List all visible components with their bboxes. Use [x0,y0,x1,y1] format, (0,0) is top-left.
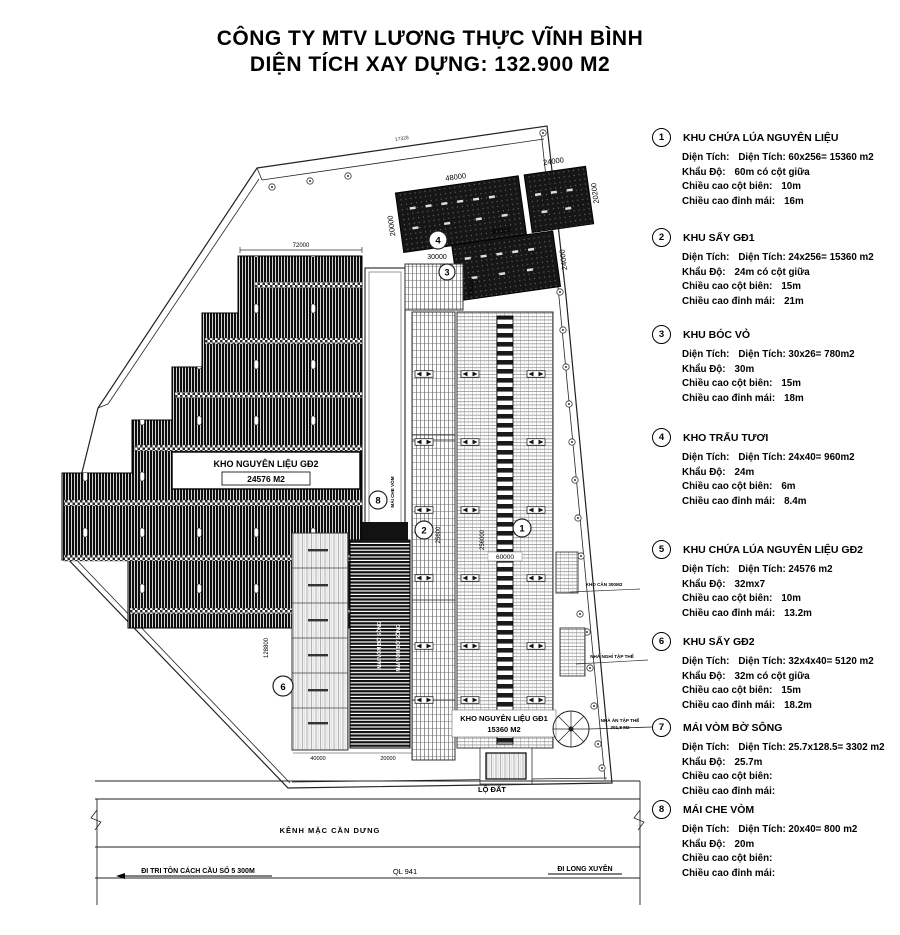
ridge-label: Chiều cao đỉnh mái: [682,296,775,307]
area-value: Diện Tích: 24576 m2 [738,564,832,575]
legend-item-4: 4 KHO TRẤU TƯƠI Diện Tích:Diện Tích: 24x… [652,428,898,509]
span-label: Khẩu Độ: [682,467,726,478]
legend-name-8: MÁI CHE VÒM [683,804,754,816]
ridge-value: 18.2m [784,700,812,711]
ridge-label: Chiều cao đỉnh mái: [682,196,775,207]
site-plan-drawing: 17328 48000 24000 20000 20200 [0,0,900,935]
edge-label: Chiều cao cột biên: [682,593,772,604]
area-label: Diện Tích: [682,824,729,835]
ridge-label: Chiều cao đỉnh mái: [682,393,775,404]
legend-item-2: 2 KHU SẤY GĐ1 Diện Tích:Diện Tích: 24x25… [652,228,898,309]
span-value: 24m [735,467,755,478]
legend-bubble-7: 7 [652,718,671,737]
edge-label: Chiều cao cột biên: [682,685,772,696]
edge-label: Chiều cao cột biên: [682,771,772,782]
legend-item-8: 8 MÁI CHE VÒM Diện Tích:Diện Tích: 20x40… [652,800,898,881]
edge-label: Chiều cao cột biên: [682,481,772,492]
area-value: Diện Tích: 20x40= 800 m2 [738,824,857,835]
edge-label: Chiều cao cột biên: [682,281,772,292]
area-label: Diện Tích: [682,349,729,360]
span-label: Khẩu Độ: [682,267,726,278]
span-value: 30m [735,364,755,375]
area-value: Diện Tích: 24x256= 15360 m2 [738,252,873,263]
edge-value: 15m [781,281,801,292]
span-value: 25.7m [735,757,763,768]
span-label: Khẩu Độ: [682,757,726,768]
span-value: 60m có cột giữa [735,167,810,178]
ridge-value: 8.4m [784,496,806,507]
area-value: Diện Tích: 24x40= 960m2 [738,452,854,463]
legend-item-6: 6 KHU SẤY GĐ2 Diện Tích:Diện Tích: 32x4x… [652,632,898,713]
span-value: 32m có cột giữa [735,671,810,682]
ridge-value: 21m [784,296,804,307]
ridge-value: 13.2m [784,608,812,619]
legend-name-2: KHU SẤY GĐ1 [683,232,755,244]
ridge-label: Chiều cao đỉnh mái: [682,868,775,879]
edge-value: 10m [781,181,801,192]
span-value: 32mx7 [735,579,766,590]
span-label: Khẩu Độ: [682,364,726,375]
ridge-value: 16m [784,196,804,207]
area-label: Diện Tích: [682,452,729,463]
area-value: Diện Tích: 32x4x40= 5120 m2 [738,656,873,667]
span-label: Khẩu Độ: [682,167,726,178]
area-label: Diện Tích: [682,656,729,667]
legend-name-5: KHU CHỨA LÚA NGUYÊN LIỆU GĐ2 [683,544,863,556]
span-label: Khẩu Độ: [682,671,726,682]
legend-item-7: 7 MÁI VÒM BỜ SÔNG Diện Tích:Diện Tích: 2… [652,718,898,799]
edge-label: Chiều cao cột biên: [682,181,772,192]
legend-bubble-5: 5 [652,540,671,559]
area-value: Diện Tích: 30x26= 780m2 [738,349,854,360]
edge-value: 15m [781,378,801,389]
edge-value: 6m [781,481,795,492]
span-label: Khẩu Độ: [682,839,726,850]
edge-label: Chiều cao cột biên: [682,378,772,389]
legend-bubble-8: 8 [652,800,671,819]
ridge-label: Chiều cao đỉnh mái: [682,786,775,797]
legend-bubble-4: 4 [652,428,671,447]
span-value: 24m có cột giữa [735,267,810,278]
legend-name-3: KHU BÓC VỎ [683,329,750,341]
edge-label: Chiều cao cột biên: [682,853,772,864]
area-value: Diện Tích: 25.7x128.5= 3302 m2 [738,742,884,753]
legend-item-5: 5 KHU CHỨA LÚA NGUYÊN LIỆU GĐ2 Diện Tích… [652,540,898,621]
area-label: Diện Tích: [682,742,729,753]
legend-name-4: KHO TRẤU TƯƠI [683,432,768,444]
edge-value: 10m [781,593,801,604]
legend-bubble-2: 2 [652,228,671,247]
edge-value: 15m [781,685,801,696]
ridge-label: Chiều cao đỉnh mái: [682,496,775,507]
legend-bubble-1: 1 [652,128,671,147]
area-value: Diện Tích: 60x256= 15360 m2 [738,152,873,163]
ridge-label: Chiều cao đỉnh mái: [682,608,775,619]
span-label: Khẩu Độ: [682,579,726,590]
ridge-label: Chiều cao đỉnh mái: [682,700,775,711]
area-label: Diện Tích: [682,152,729,163]
legend-bubble-3: 3 [652,325,671,344]
legend-item-1: 1 KHU CHỨA LÚA NGUYÊN LIỆU Diện Tích:Diệ… [652,128,898,209]
ridge-value: 18m [784,393,804,404]
area-label: Diện Tích: [682,252,729,263]
legend-bubble-6: 6 [652,632,671,651]
legend-name-6: KHU SẤY GĐ2 [683,636,755,648]
area-label: Diện Tích: [682,564,729,575]
legend: 1 KHU CHỨA LÚA NGUYÊN LIỆU Diện Tích:Diệ… [0,0,900,935]
span-value: 20m [735,839,755,850]
legend-name-7: MÁI VÒM BỜ SÔNG [683,722,782,734]
legend-name-1: KHU CHỨA LÚA NGUYÊN LIỆU [683,132,839,144]
legend-item-3: 3 KHU BÓC VỎ Diện Tích:Diện Tích: 30x26=… [652,325,898,406]
